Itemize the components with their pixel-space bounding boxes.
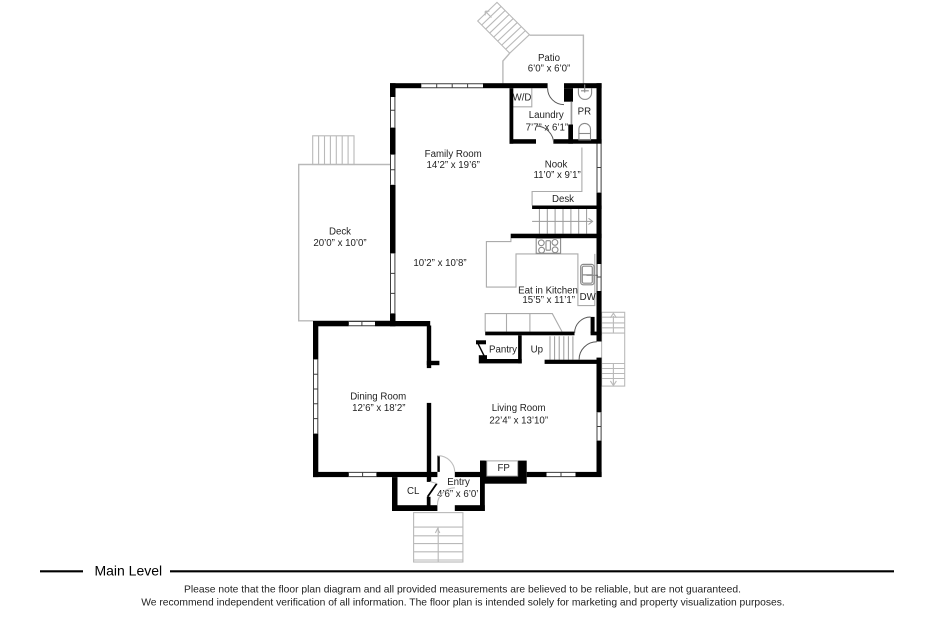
svg-text:4’6” x 6’0’: 4’6” x 6’0’ [437,489,478,500]
svg-text:15’5” x 11’1”: 15’5” x 11’1” [522,295,575,306]
svg-text:Family Room: Family Room [425,149,482,160]
svg-text:Dining Room: Dining Room [350,392,406,403]
svg-text:CL: CL [407,486,420,497]
svg-text:11’0” x 9’1”: 11’0” x 9’1” [533,170,580,181]
svg-text:Entry: Entry [447,477,470,488]
svg-text:FP: FP [498,463,510,474]
svg-text:PR: PR [578,107,591,118]
svg-text:Deck: Deck [329,227,351,238]
svg-text:7’7” x 6’1”: 7’7” x 6’1” [526,123,569,134]
svg-text:Up: Up [531,344,543,355]
svg-text:Patio: Patio [538,53,560,64]
svg-text:Main Level: Main Level [94,563,162,579]
svg-text:Laundry: Laundry [529,110,564,121]
svg-text:Pantry: Pantry [489,344,517,355]
svg-text:6’0” x 6’0”: 6’0” x 6’0” [528,64,571,75]
svg-text:22’4” x 13’10”: 22’4” x 13’10” [489,415,548,426]
svg-text:We recommend independent verif: We recommend independent verification of… [141,597,785,608]
svg-text:Please note that the floor pla: Please note that the floor plan diagram … [184,584,741,595]
svg-text:20’0” x 10’0”: 20’0” x 10’0” [313,238,366,249]
svg-text:Desk: Desk [552,194,574,205]
svg-text:10’2” x 10’8”: 10’2” x 10’8” [413,258,466,269]
svg-text:DW: DW [580,292,597,303]
svg-text:Living Room: Living Room [492,403,546,414]
svg-text:Nook: Nook [545,160,568,171]
svg-text:W/D: W/D [513,92,532,103]
svg-text:14’2” x 19’6”: 14’2” x 19’6” [427,160,480,171]
svg-text:12’6” x 18’2”: 12’6” x 18’2” [352,403,405,414]
